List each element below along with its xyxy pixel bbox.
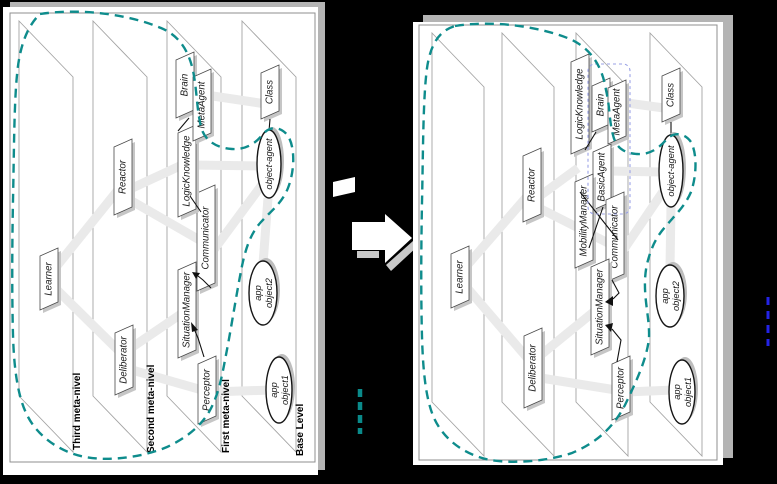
node-object-agent-label: object-agent: [264, 138, 274, 190]
label-third-meta-level: Third meta-nivel: [72, 373, 83, 450]
node-app-object1-right-line2: object1: [683, 377, 693, 407]
node-brain-right-label: Brain: [596, 94, 607, 117]
label-second-meta-level: Second meta-nivel: [146, 364, 157, 453]
node-learner-right-label: Learner: [455, 260, 466, 294]
node-brain-label: Brain: [180, 74, 191, 97]
node-deliberator-label: Deliberator: [119, 336, 130, 384]
node-reactor-right: Reactor: [523, 148, 544, 225]
node-deliberator-right-label: Deliberator: [528, 344, 539, 392]
label-first-meta-level: First meta-nivel: [221, 379, 232, 453]
node-reactor-label: Reactor: [118, 159, 129, 194]
node-meta-agent-right: MetaAgent: [608, 80, 629, 147]
node-communicator-label: Communicator: [201, 206, 212, 270]
transform-arrow-group: [333, 177, 418, 271]
node-app-object2-right-line2: object2: [671, 280, 681, 311]
node-meta-agent-right-label: MetaAgent: [612, 87, 623, 135]
node-app-object1-line1: app: [269, 382, 279, 398]
plane-third-meta-level-right: [432, 33, 484, 456]
node-situation-manager-right: SituationManager: [591, 259, 612, 358]
node-perceptor-right: Perceptor: [612, 356, 633, 423]
figure-stage: Learner Deliberator Reactor Perceptor Si…: [0, 0, 777, 484]
node-deliberator-right: Deliberator: [524, 328, 545, 411]
node-logic-knowledge-label: LogicKnowledge: [182, 135, 193, 207]
left-figure-panel: Learner Deliberator Reactor Perceptor Si…: [3, 2, 325, 475]
node-logic-knowledge-right-label: LogicKnowledge: [575, 68, 586, 140]
node-mobility-manager: MobilityManager: [575, 174, 596, 271]
node-app-object2-right-line1: app: [660, 288, 670, 304]
node-learner-label: Learner: [44, 262, 55, 296]
node-deliberator: Deliberator: [115, 325, 136, 398]
node-perceptor-label: Perceptor: [202, 368, 213, 411]
plane-third-meta-level: [19, 21, 73, 452]
node-reactor-right-label: Reactor: [527, 167, 538, 202]
node-learner-right: Learner: [451, 246, 472, 311]
node-app-object1-right-line1: app: [672, 384, 682, 400]
node-learner: Learner: [40, 248, 61, 313]
node-app-object2-line2: object2: [264, 277, 274, 308]
node-class: Class: [261, 65, 282, 122]
node-situation-manager-label: SituationManager: [182, 271, 193, 348]
node-class-right-label: Class: [666, 83, 677, 107]
label-base-level: Base Level: [295, 404, 306, 456]
node-perceptor: Perceptor: [198, 356, 219, 427]
small-plane-icon: [333, 177, 355, 197]
node-logic-knowledge-right: LogicKnowledge: [571, 54, 592, 157]
node-class-label: Class: [265, 80, 276, 104]
node-basic-agent-label: BasicAgent: [597, 151, 608, 201]
right-figure-panel: Learner Deliberator Reactor LogicKnowled…: [413, 15, 733, 465]
node-class-right: Class: [662, 68, 683, 125]
arrow-tail-shadow: [357, 251, 379, 258]
node-object-agent-right-label: object-agent: [666, 145, 676, 197]
node-reactor: Reactor: [114, 139, 135, 218]
node-app-object1-line2: object1: [280, 375, 290, 405]
node-app-object2-line1: app: [253, 285, 263, 301]
node-situation-manager-right-label: SituationManager: [595, 268, 606, 345]
